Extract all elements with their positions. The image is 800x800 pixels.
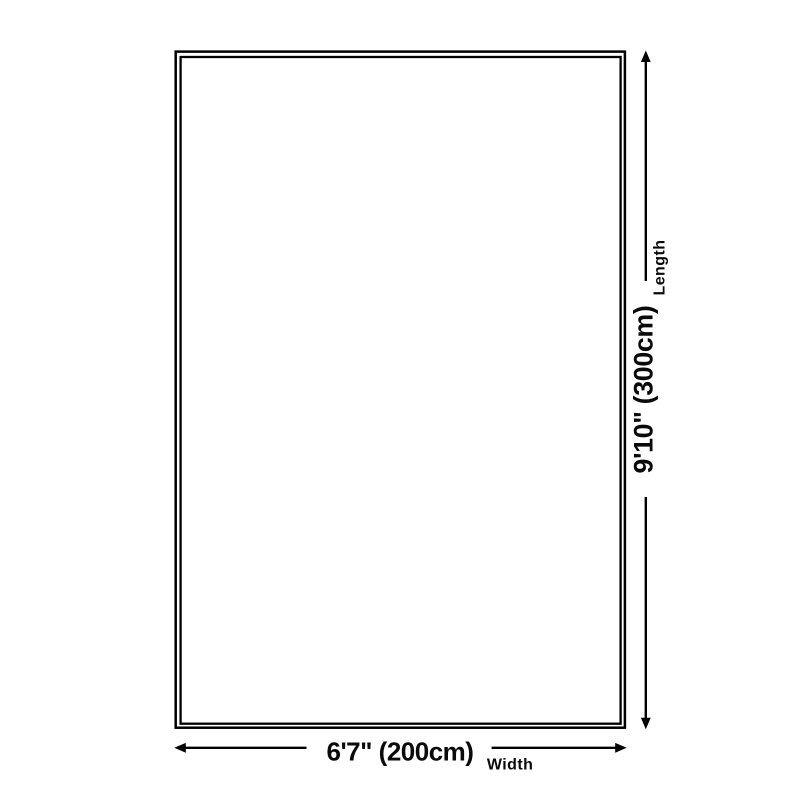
svg-text:Length: Length bbox=[652, 239, 669, 295]
svg-text:6'7" (200cm): 6'7" (200cm) bbox=[327, 736, 474, 766]
svg-text:9'10" (300cm): 9'10" (300cm) bbox=[629, 306, 659, 474]
svg-text:Width: Width bbox=[487, 757, 534, 774]
